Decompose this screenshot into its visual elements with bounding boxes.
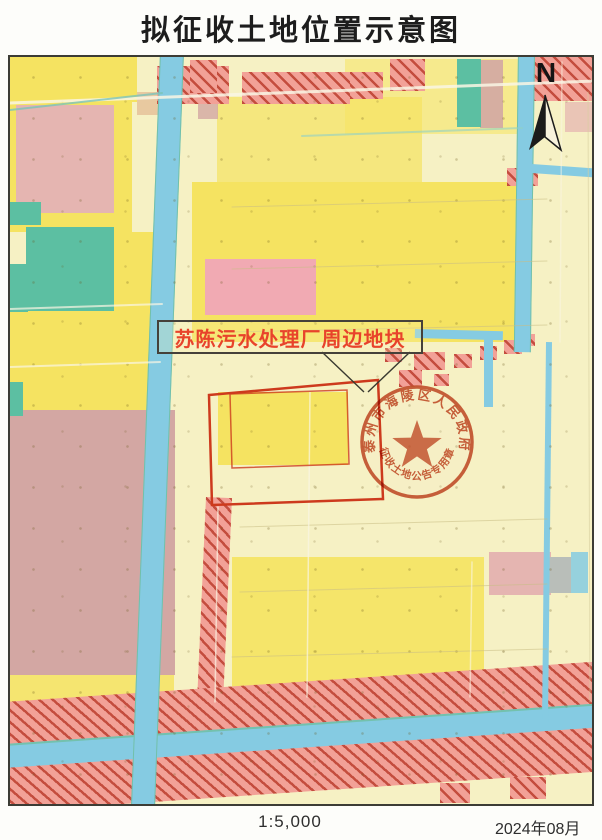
pond <box>571 552 588 593</box>
parcel-gray <box>548 557 571 593</box>
seal-top-text: 泰州市海陵区人民政府 <box>362 387 473 454</box>
waterway-branch <box>484 335 493 407</box>
parcel-pink <box>489 552 551 595</box>
building-block <box>399 370 422 387</box>
area-label-text: 苏陈污水处理厂周边地块 <box>175 323 406 352</box>
area-label-box: 苏陈污水处理厂周边地块 <box>157 320 423 354</box>
waterway-branch <box>531 164 594 178</box>
parcel-teal <box>10 202 41 225</box>
hatched-zone <box>350 72 383 99</box>
seal-star-icon <box>392 420 441 467</box>
map-scale: 1:5,000 <box>220 812 360 832</box>
seal-ring <box>362 387 472 497</box>
parcel-yellow <box>10 57 137 102</box>
parcel-teal <box>457 59 481 127</box>
map-date: 2024年08月 <box>495 815 595 839</box>
building-block <box>434 374 449 386</box>
parcel-yellow <box>218 392 348 465</box>
parcel-pink <box>205 259 316 315</box>
official-seal: 泰州市海陵区人民政府 征收土地公告专用章 <box>362 387 473 497</box>
parcel-teal <box>10 264 28 312</box>
parcel-yellow <box>10 310 162 414</box>
parcel-teal <box>10 382 23 416</box>
page-title: 拟征收土地位置示意图 <box>0 7 602 49</box>
north-label: N <box>524 57 568 89</box>
building-block <box>414 352 445 370</box>
hatched-zone <box>190 60 217 93</box>
map-canvas: 泰州市海陵区人民政府 征收土地公告专用章 苏陈污水处理厂周边地块 N <box>8 55 594 806</box>
parcel-mauve <box>480 60 503 128</box>
hatched-zone <box>510 777 546 799</box>
parcel-pink <box>565 102 594 132</box>
seal-bottom-text: 征收土地公告专用章 <box>377 446 458 483</box>
hatched-zone <box>390 59 425 91</box>
hatched-zone <box>440 783 470 803</box>
parcel-teal <box>26 227 114 311</box>
document-page: 拟征收土地位置示意图 <box>0 0 602 840</box>
waterway-right-canal <box>514 55 535 352</box>
hatched-zone <box>242 72 350 104</box>
building-block <box>454 354 472 368</box>
parcel-pink <box>16 105 114 213</box>
